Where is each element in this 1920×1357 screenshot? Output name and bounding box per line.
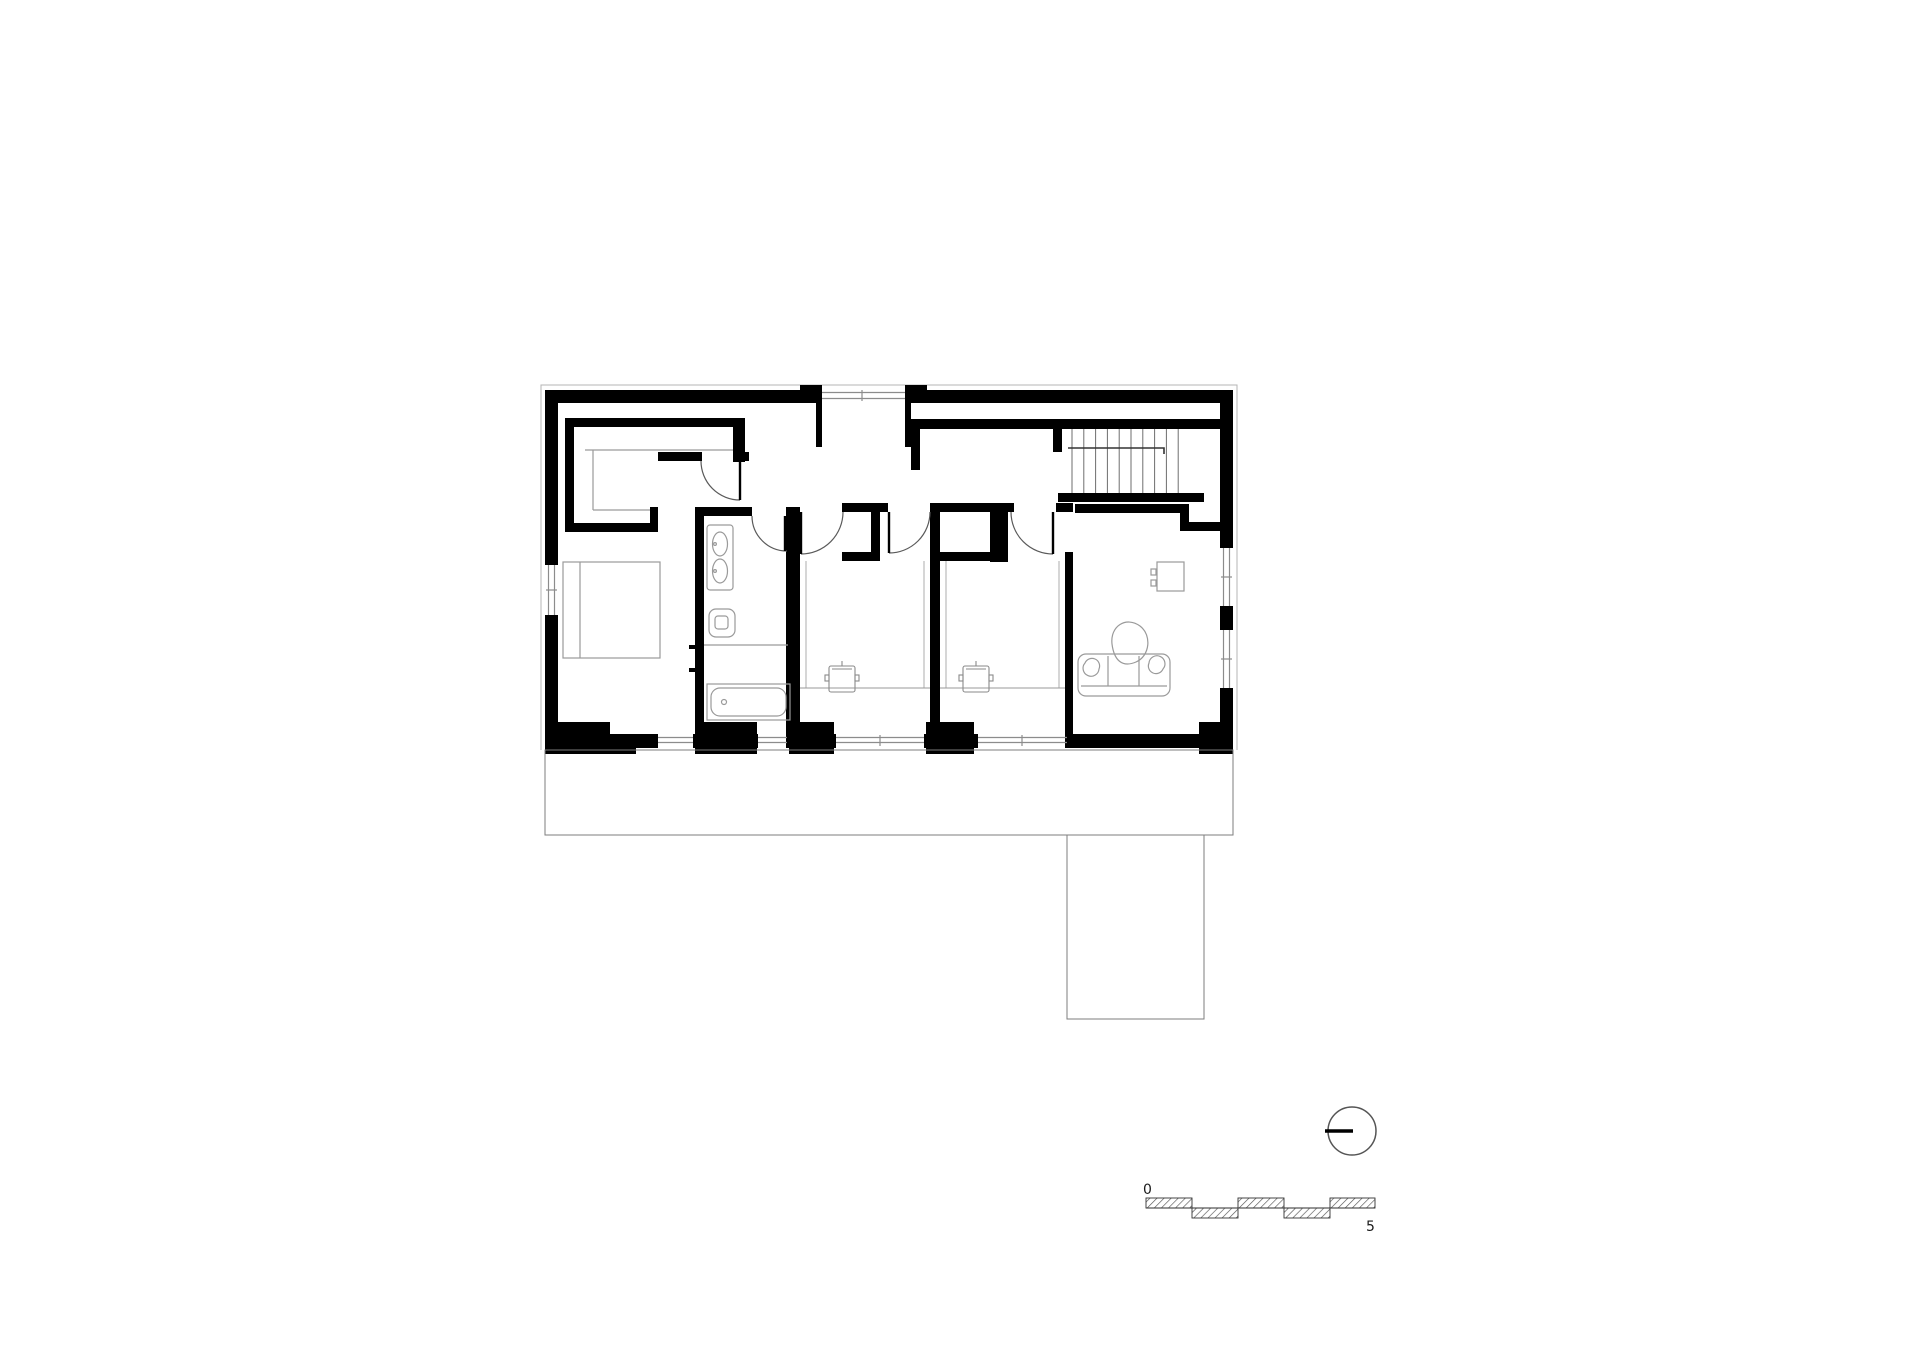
chair — [959, 661, 993, 692]
windows — [546, 390, 1232, 746]
sink-basin — [713, 532, 728, 556]
north-indicator — [1325, 1107, 1376, 1155]
side-table — [1112, 622, 1148, 664]
terrace-outline — [545, 750, 1233, 1019]
bathtub-drain — [722, 700, 727, 705]
floor-plan-canvas: 0 5 — [0, 0, 1920, 1357]
staircase — [1068, 429, 1178, 493]
scale-end-label: 5 — [1366, 1219, 1375, 1235]
drawing-sheet: 0 5 — [0, 0, 1920, 1357]
stair-railing — [1068, 448, 1164, 454]
scale-start-label: 0 — [1143, 1182, 1152, 1198]
living-furniture — [1078, 562, 1184, 696]
desk — [1157, 562, 1184, 591]
bathroom-fixtures — [704, 525, 790, 720]
scale-bar: 0 5 — [1143, 1182, 1375, 1235]
vanity-counter — [707, 525, 733, 590]
chair — [825, 661, 859, 692]
toilet — [709, 609, 735, 637]
interior-walls — [565, 418, 1220, 748]
sink-basin — [713, 559, 728, 583]
floor-plan — [541, 385, 1237, 1019]
exterior-walls — [545, 385, 1233, 754]
exterior-finish-line — [541, 385, 1237, 750]
bathtub — [707, 684, 790, 720]
sofa — [1078, 654, 1170, 696]
bed — [563, 562, 660, 658]
